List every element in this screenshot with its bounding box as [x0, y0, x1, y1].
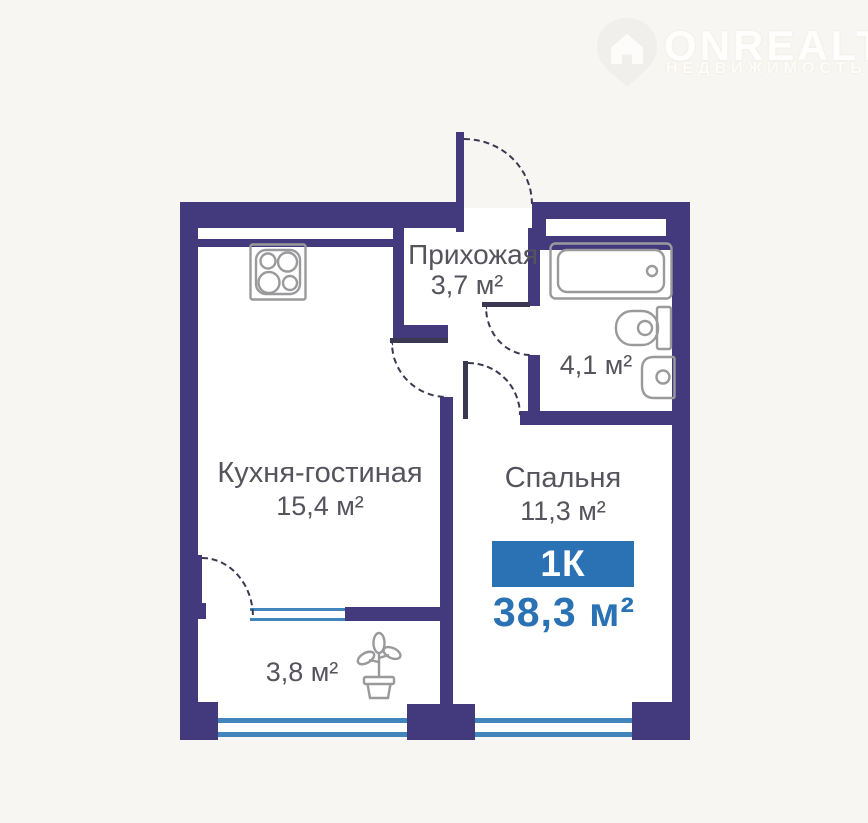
bathroom-area: 4,1 м²: [548, 351, 644, 379]
stove-hob-icon: [249, 243, 307, 301]
logo-tagline-text: НЕДВИЖИМОСТЬ: [666, 60, 867, 78]
wall-right: [672, 202, 690, 740]
kitchen-living-label: Кухня-гостиная: [175, 458, 465, 488]
kitchen-duct-foot: [393, 325, 448, 338]
location-pin-logo-icon: [594, 16, 660, 90]
floorplan-canvas: ONREALT НЕДВИЖИМОСТЬ: [0, 0, 868, 823]
rooms-count-text: 1К: [540, 543, 585, 585]
bedroom-area: 11,3 м²: [470, 497, 656, 525]
bathtub-icon: [549, 242, 673, 300]
bathroom-wall-bottom: [520, 411, 690, 425]
pier-bottom-center: [407, 704, 475, 740]
wall-top-kitchen: [180, 202, 458, 228]
balcony-door-leaf: [195, 555, 202, 617]
plant-icon: [354, 632, 406, 700]
total-area-text: 38,3 м²: [448, 589, 680, 636]
toilet-icon: [612, 303, 674, 353]
balcony-partition-wall: [345, 607, 445, 621]
hallway-label: Прихожая: [392, 240, 554, 269]
vent-shaft-inset: [546, 219, 666, 236]
bedroom-partition-wall: [440, 397, 453, 727]
kitchen-living-area: 15,4 м²: [175, 492, 465, 520]
pier-bottom-right: [632, 702, 690, 740]
entry-door-leaf: [456, 132, 464, 232]
rooms-count-badge: 1К: [492, 541, 634, 587]
balcony-area: 3,8 м²: [252, 658, 352, 686]
pier-bottom-left: [180, 702, 218, 740]
entry-door-swing-arc: [464, 138, 533, 204]
sink-icon: [640, 355, 676, 400]
balcony-glazing: [250, 608, 346, 621]
bedroom-label: Спальня: [470, 463, 656, 493]
hallway-area: 3,7 м²: [392, 271, 542, 299]
